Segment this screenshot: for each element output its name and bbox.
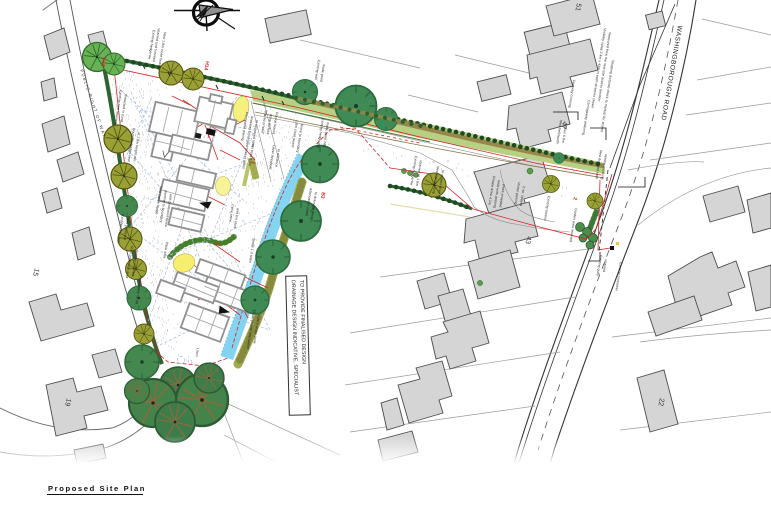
svg-text:Proposed Site Plan: Proposed Site Plan bbox=[48, 484, 146, 493]
svg-text:B3: B3 bbox=[319, 192, 326, 200]
